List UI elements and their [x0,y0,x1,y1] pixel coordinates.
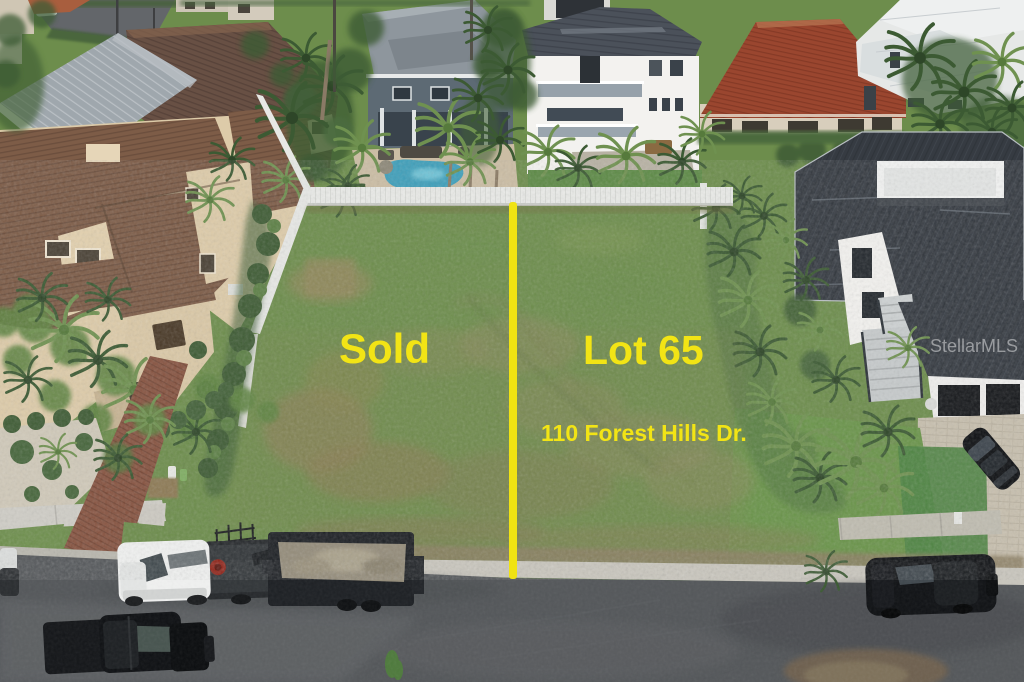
svg-text:110 Forest Hills Dr.: 110 Forest Hills Dr. [541,420,747,446]
svg-text:Lot 65: Lot 65 [583,327,704,373]
svg-text:StellarMLS: StellarMLS [930,336,1018,356]
svg-text:Sold: Sold [339,325,430,372]
